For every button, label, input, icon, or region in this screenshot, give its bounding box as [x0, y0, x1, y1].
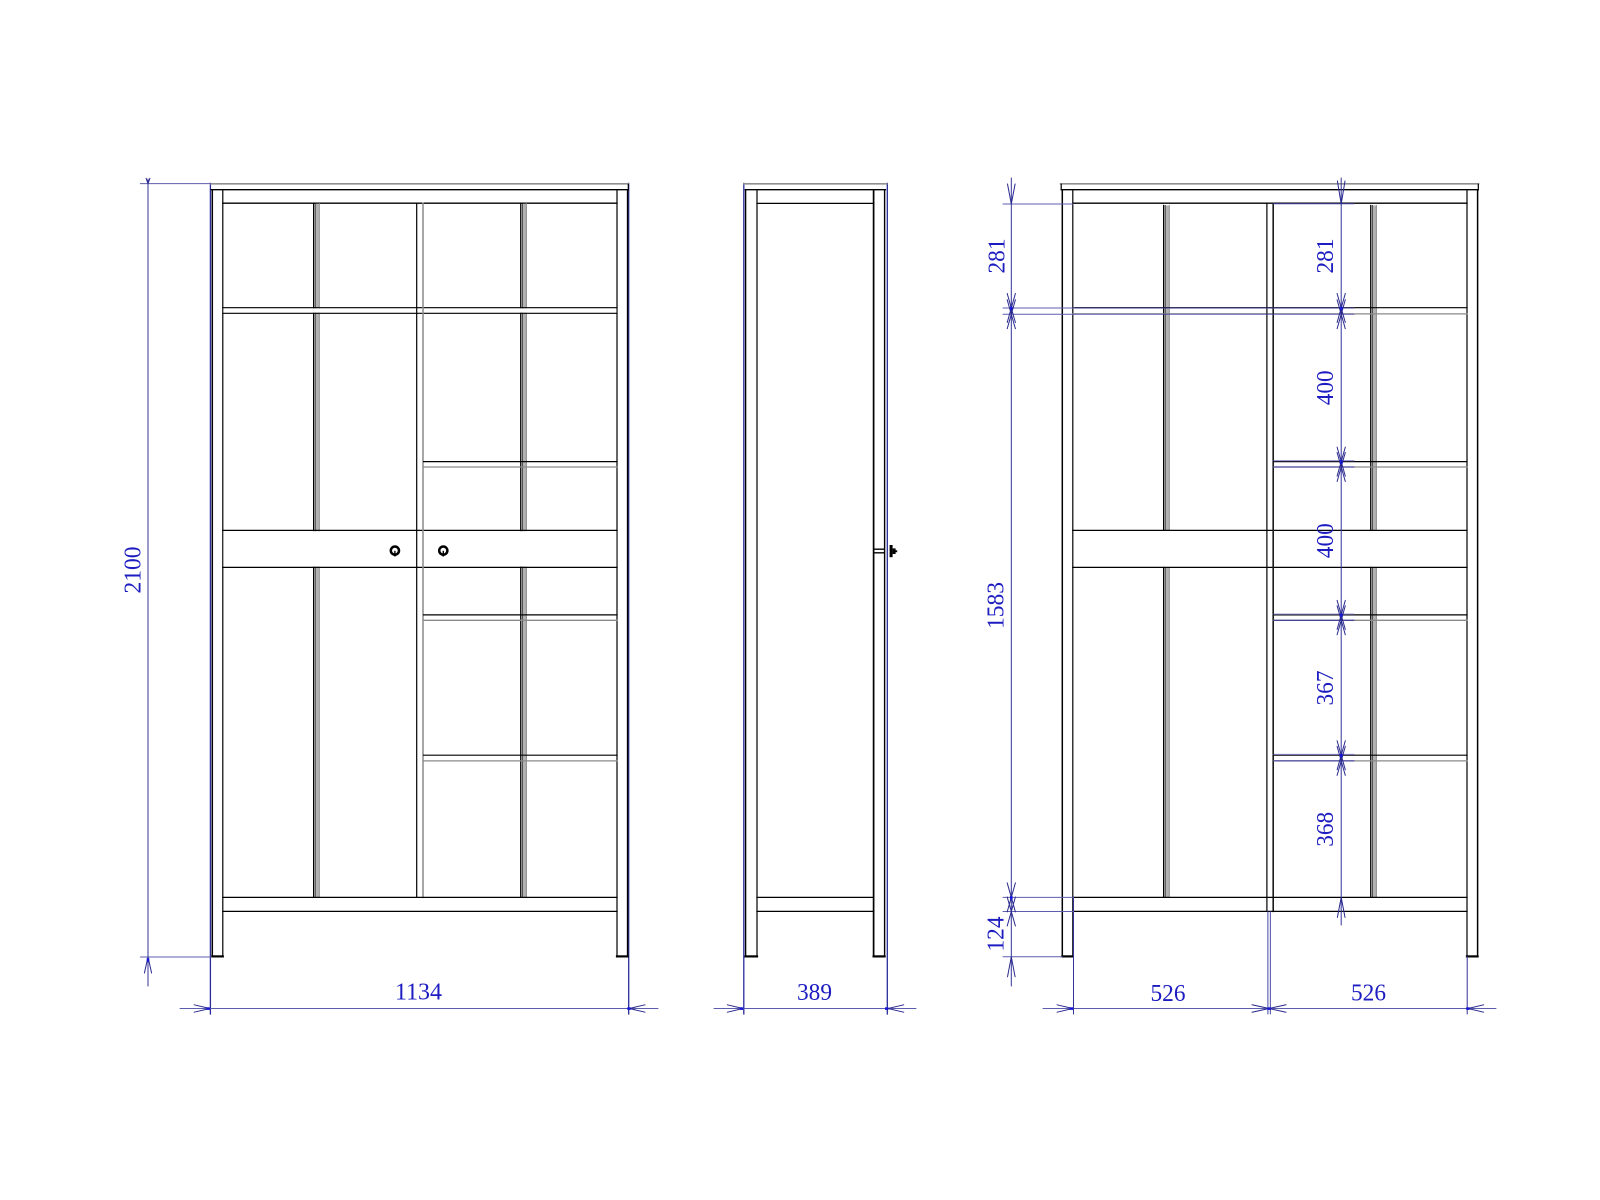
- svg-text:389: 389: [797, 979, 832, 1006]
- svg-text:1583: 1583: [983, 582, 1010, 629]
- svg-text:367: 367: [1312, 671, 1339, 706]
- svg-text:400: 400: [1312, 523, 1339, 558]
- svg-text:281: 281: [983, 239, 1010, 274]
- svg-text:526: 526: [1151, 980, 1186, 1007]
- svg-text:2100: 2100: [120, 547, 147, 594]
- svg-text:368: 368: [1312, 812, 1339, 847]
- svg-text:400: 400: [1312, 370, 1339, 405]
- svg-text:526: 526: [1351, 979, 1386, 1006]
- svg-text:1134: 1134: [395, 979, 442, 1006]
- svg-text:124: 124: [983, 917, 1010, 952]
- svg-text:281: 281: [1312, 239, 1339, 274]
